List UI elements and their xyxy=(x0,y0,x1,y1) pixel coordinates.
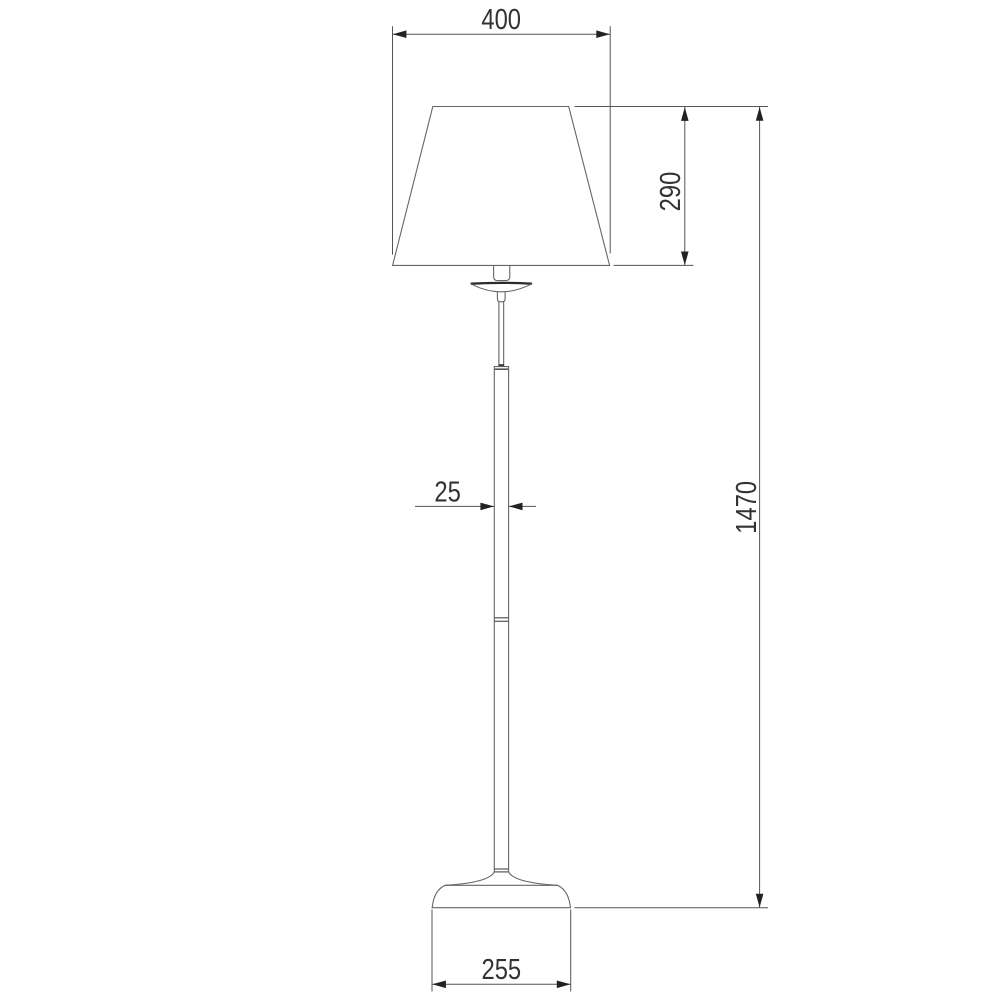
svg-text:290: 290 xyxy=(654,172,687,212)
svg-text:1470: 1470 xyxy=(730,481,763,534)
svg-text:255: 255 xyxy=(481,953,521,986)
svg-text:400: 400 xyxy=(481,3,521,36)
svg-text:25: 25 xyxy=(434,475,460,508)
